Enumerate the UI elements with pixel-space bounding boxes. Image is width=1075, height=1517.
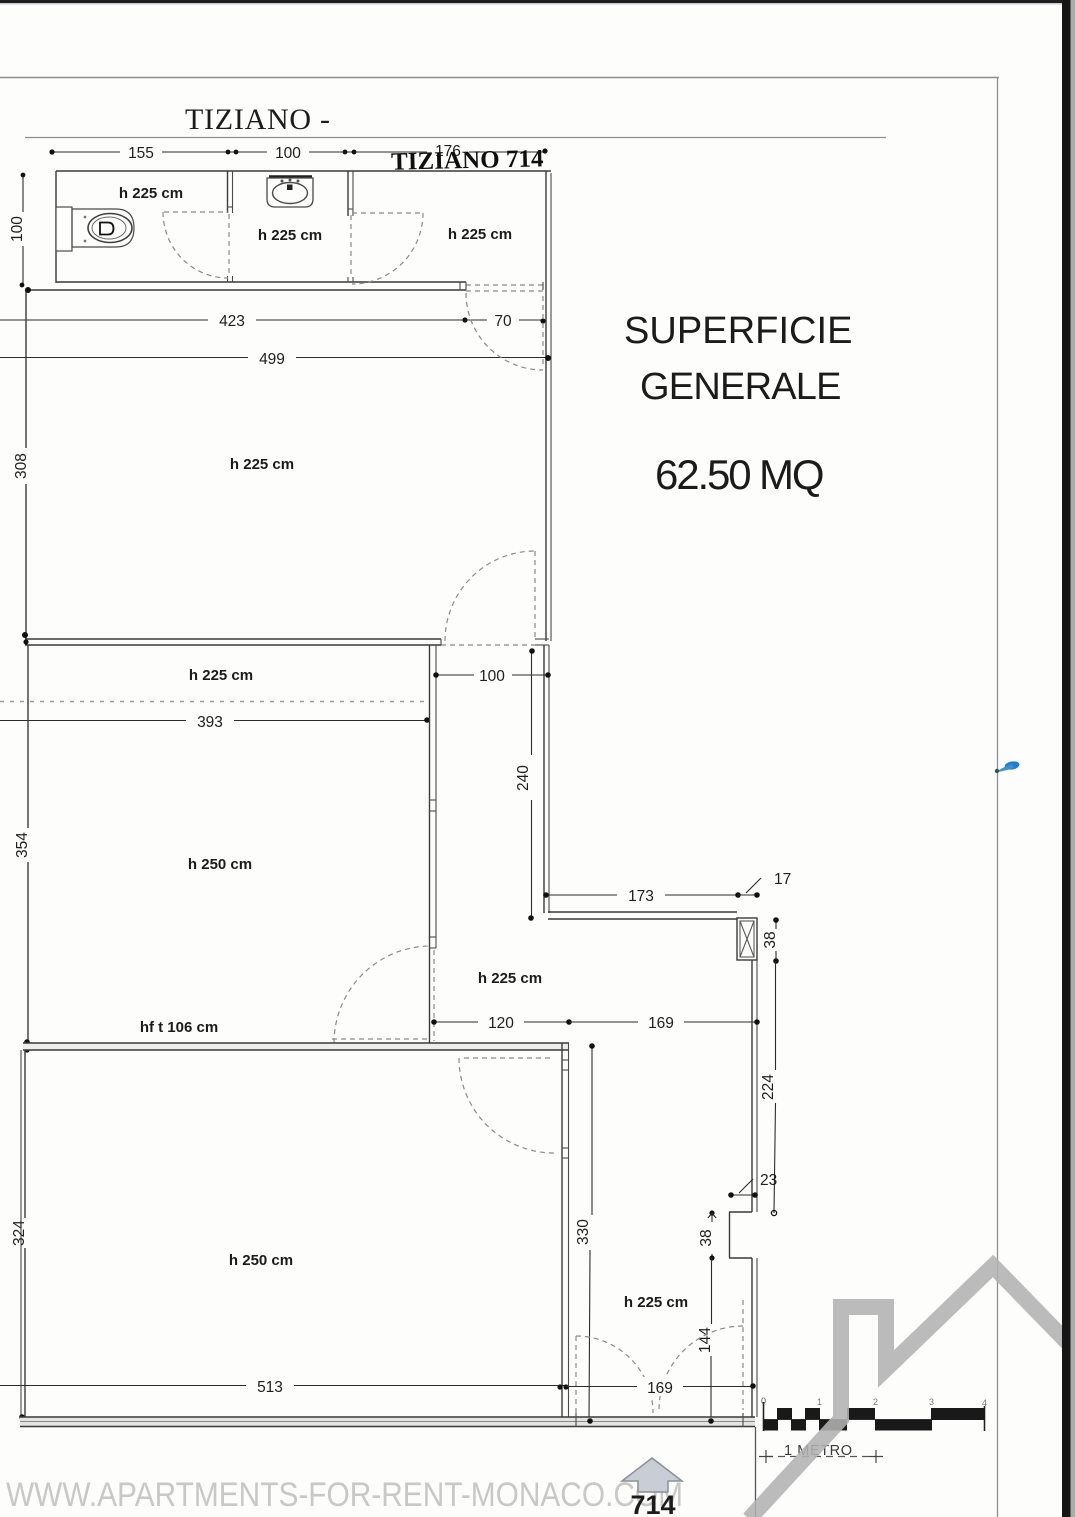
svg-text:23: 23 — [760, 1172, 777, 1189]
svg-text:330: 330 — [575, 1219, 592, 1245]
svg-text:3: 3 — [929, 1397, 934, 1407]
svg-text:h 225 cm: h 225 cm — [189, 667, 253, 684]
svg-text:423: 423 — [219, 313, 245, 330]
svg-text:393: 393 — [197, 714, 223, 731]
svg-text:100: 100 — [479, 668, 505, 685]
svg-text:100: 100 — [9, 216, 26, 242]
svg-text:4: 4 — [982, 1398, 987, 1408]
svg-text:169: 169 — [647, 1380, 673, 1397]
svg-text:0: 0 — [761, 1396, 766, 1406]
svg-text:100: 100 — [275, 145, 301, 162]
svg-text:155: 155 — [128, 145, 154, 162]
svg-text:224: 224 — [760, 1074, 777, 1100]
svg-text:714: 714 — [630, 1490, 675, 1517]
svg-text:h 250 cm: h 250 cm — [188, 856, 252, 873]
svg-text:17: 17 — [774, 871, 791, 888]
svg-text:h 225 cm: h 225 cm — [624, 1294, 688, 1311]
svg-text:TIZIANO -: TIZIANO - — [185, 103, 331, 136]
svg-text:38: 38 — [762, 931, 779, 948]
svg-text:169: 169 — [648, 1015, 674, 1032]
svg-text:h 225 cm: h 225 cm — [119, 185, 183, 202]
svg-text:h 225 cm: h 225 cm — [478, 970, 542, 987]
svg-text:2: 2 — [873, 1397, 878, 1407]
svg-text:173: 173 — [628, 888, 654, 905]
svg-text:GENERALE: GENERALE — [640, 366, 842, 408]
svg-text:324: 324 — [11, 1220, 28, 1246]
svg-text:SUPERFICIE: SUPERFICIE — [624, 310, 853, 352]
svg-text:70: 70 — [494, 313, 512, 330]
svg-text:hf t 106 cm: hf t 106 cm — [140, 1019, 218, 1036]
svg-text:354: 354 — [14, 832, 31, 858]
svg-text:h 250 cm: h 250 cm — [229, 1252, 293, 1269]
svg-text:144: 144 — [697, 1327, 714, 1353]
svg-text:240: 240 — [515, 765, 532, 791]
svg-text:WWW.APARTMENTS-FOR-RENT-MONACO: WWW.APARTMENTS-FOR-RENT-MONACO.COM — [6, 1476, 683, 1514]
svg-text:h 225 cm: h 225 cm — [448, 226, 512, 243]
svg-text:120: 120 — [488, 1015, 514, 1032]
svg-text:38: 38 — [698, 1229, 715, 1246]
svg-text:h 225 cm: h 225 cm — [258, 227, 322, 244]
svg-text:h 225 cm: h 225 cm — [230, 456, 294, 473]
svg-text:499: 499 — [259, 351, 285, 368]
svg-text:513: 513 — [257, 1379, 283, 1396]
svg-text:1: 1 — [817, 1397, 822, 1407]
svg-text:62.50 MQ: 62.50 MQ — [655, 451, 825, 498]
svg-text:308: 308 — [13, 453, 30, 479]
